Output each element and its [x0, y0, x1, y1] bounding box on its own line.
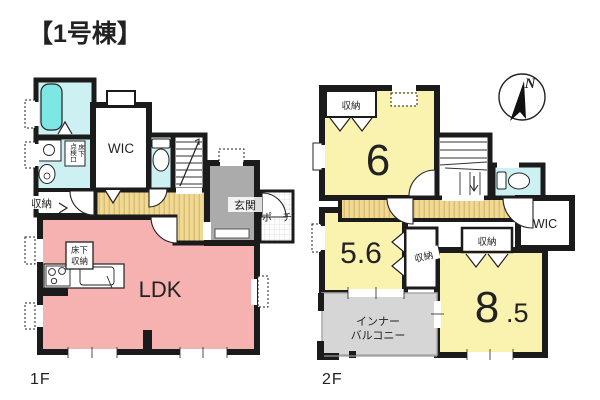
- ldk-label: LDK: [139, 277, 182, 302]
- closet-label-1f: 収納: [31, 197, 52, 210]
- stair-opening-2f: [442, 195, 484, 201]
- kitchen-wall-stub: [41, 288, 68, 296]
- underfloor-storage-line1: 床下: [71, 245, 89, 255]
- washing-machine-icon: [39, 165, 55, 184]
- floor2-label: 2F: [322, 371, 343, 388]
- floor-plan-svg: 【1号棟】: [0, 0, 600, 400]
- wic-closet-stub: [107, 91, 135, 106]
- floor2-plan: 収納 収納 収納: [312, 85, 572, 388]
- entrance-step: [215, 229, 249, 238]
- ldk-wall-stub: [143, 330, 152, 352]
- compass-n-label: N: [524, 76, 537, 92]
- vanity-sink-icon: [38, 140, 61, 161]
- page-title: 【1号棟】: [28, 20, 142, 48]
- compass-north-icon: N: [499, 74, 545, 121]
- stair-opening: [176, 188, 202, 194]
- balcony-label-line2: バルコニー: [351, 329, 406, 342]
- room85-label-whole: 8: [475, 283, 499, 332]
- floorplan-page: 【1号棟】: [0, 0, 600, 400]
- wic-label-2f: WIC: [533, 217, 557, 231]
- floor1-label: 1F: [30, 371, 51, 388]
- balcony-label-line1: インナー: [356, 315, 400, 328]
- entrance-label: 玄関: [234, 198, 256, 212]
- door-arc-wic-2f: [503, 198, 533, 228]
- closet-room85-label: 収納: [477, 236, 496, 248]
- entrance-opening: [203, 222, 211, 240]
- underfloor-storage-line2: 収納: [71, 256, 88, 266]
- room56-label: 5.6: [340, 237, 382, 270]
- room85-label-fraction: .5: [506, 298, 529, 328]
- staircase-2f: [437, 135, 490, 198]
- floor1-plan: WIC LDK 玄関 ポーチ 収納 床下 収納 床下 点検口 1F: [25, 80, 293, 388]
- toilet-tank-1f: [152, 139, 170, 148]
- porch-label: ポーチ: [262, 212, 292, 224]
- bathtub-icon: [41, 84, 62, 130]
- toilet-icon-2f: [509, 173, 530, 189]
- closet-room6-label: 収納: [341, 100, 360, 112]
- toilet-tank-2f: [497, 172, 506, 189]
- kitchen-sink-icon: [80, 267, 114, 285]
- hallway-2f: [340, 198, 520, 220]
- wic-label-1f: WIC: [108, 141, 134, 156]
- toilet-icon-1f: [153, 149, 169, 171]
- toilet-window-2f: [497, 161, 519, 168]
- room6-label: 6: [366, 136, 390, 185]
